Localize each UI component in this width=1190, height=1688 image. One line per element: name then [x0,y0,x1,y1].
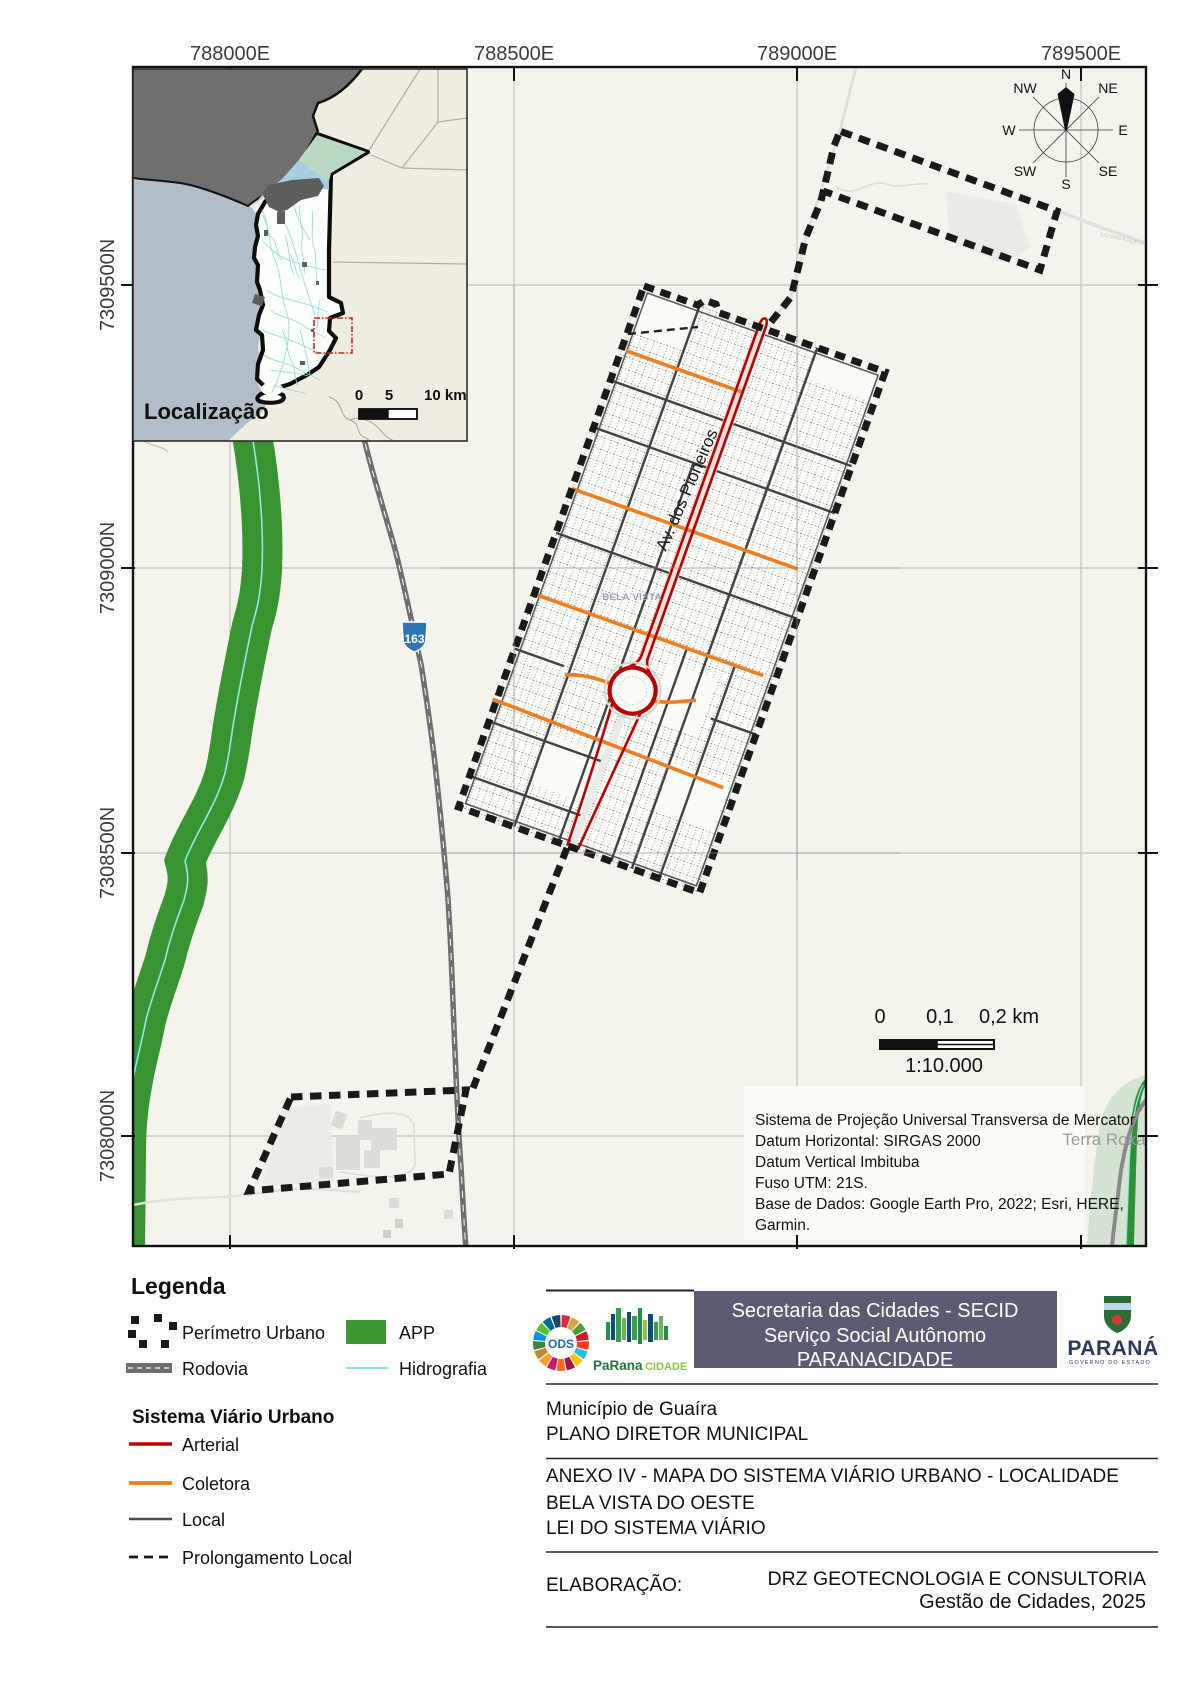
svg-text:PARANACIDADE: PARANACIDADE [797,1349,953,1371]
svg-text:789500E: 789500E [1041,43,1121,65]
svg-text:Base de Dados: Google Earth Pr: Base de Dados: Google Earth Pro, 2022; E… [755,1196,1124,1213]
svg-text:W: W [1002,122,1016,138]
svg-text:Arterial: Arterial [182,1435,239,1455]
svg-text:NW: NW [1013,80,1037,96]
svg-text:1:10.000: 1:10.000 [905,1055,983,1077]
svg-text:ANEXO IV - MAPA DO SISTEMA VIÁ: ANEXO IV - MAPA DO SISTEMA VIÁRIO URBANO… [546,1466,1119,1487]
svg-text:Coletora: Coletora [182,1474,251,1494]
svg-text:Localização: Localização [144,399,269,424]
svg-text:0: 0 [874,1006,885,1028]
svg-text:E: E [1118,122,1127,138]
svg-text:Garmin.: Garmin. [755,1217,810,1234]
svg-text:Município de Guaíra: Município de Guaíra [546,1399,718,1420]
svg-text:Rodovia: Rodovia [182,1359,249,1379]
svg-text:Datum Horizontal: SIRGAS 2000: Datum Horizontal: SIRGAS 2000 [755,1133,981,1150]
svg-text:Datum Vertical Imbituba: Datum Vertical Imbituba [755,1154,920,1171]
svg-text:CIDADE: CIDADE [645,1361,687,1373]
svg-text:Prolongamento Local: Prolongamento Local [182,1548,352,1568]
svg-text:Legenda: Legenda [131,1273,226,1299]
svg-text:N: N [1061,66,1071,82]
svg-text:Sistema de Projeção Universal: Sistema de Projeção Universal Transversa… [755,1112,1135,1129]
svg-text:163: 163 [404,632,424,646]
svg-text:Terra Roxa: Terra Roxa [1062,1130,1146,1149]
svg-text:BELA VISTA DO OESTE: BELA VISTA DO OESTE [546,1493,755,1514]
svg-text:789000E: 789000E [757,43,837,65]
svg-text:Sistema Viário Urbano: Sistema Viário Urbano [132,1407,334,1428]
svg-text:Local: Local [182,1510,225,1530]
svg-text:SE: SE [1099,163,1118,179]
svg-text:ELABORAÇÃO:: ELABORAÇÃO: [546,1574,682,1596]
svg-text:PLANO DIRETOR MUNICIPAL: PLANO DIRETOR MUNICIPAL [546,1424,808,1445]
svg-text:Perímetro Urbano: Perímetro Urbano [182,1323,325,1343]
svg-text:BELA VISTA: BELA VISTA [602,592,661,603]
svg-text:S: S [1061,176,1070,192]
svg-text:7309000N: 7309000N [97,522,119,614]
svg-text:Serviço Social Autônomo: Serviço Social Autônomo [764,1325,986,1347]
svg-text:0,1: 0,1 [926,1006,954,1028]
svg-text:LEI DO SISTEMA VIÁRIO: LEI DO SISTEMA VIÁRIO [546,1518,766,1539]
svg-text:788500E: 788500E [474,43,554,65]
svg-text:PARANÁ: PARANÁ [1067,1337,1158,1360]
svg-text:7308500N: 7308500N [97,807,119,899]
svg-text:PaRana: PaRana [593,1358,643,1373]
svg-text:788000E: 788000E [190,43,270,65]
svg-text:GOVERNO DO ESTADO: GOVERNO DO ESTADO [1069,1360,1151,1366]
svg-text:NE: NE [1098,80,1117,96]
svg-text:7308000N: 7308000N [97,1090,119,1182]
svg-text:7309500N: 7309500N [97,239,119,331]
svg-text:0,2 km: 0,2 km [979,1006,1039,1028]
svg-text:Fuso UTM: 21S.: Fuso UTM: 21S. [755,1175,868,1192]
svg-text:ODS: ODS [548,1337,574,1351]
svg-text:10 km: 10 km [424,387,467,404]
svg-text:0: 0 [355,387,363,404]
svg-text:Hidrografia: Hidrografia [399,1359,488,1379]
svg-text:Secretaria das Cidades - SECID: Secretaria das Cidades - SECID [732,1300,1019,1322]
svg-text:Gestão de Cidades, 2025: Gestão de Cidades, 2025 [919,1591,1146,1613]
svg-text:APP: APP [399,1323,435,1343]
svg-text:DRZ GEOTECNOLOGIA E CONSULTORI: DRZ GEOTECNOLOGIA E CONSULTORIA [767,1568,1146,1590]
svg-text:SW: SW [1014,163,1037,179]
svg-text:5: 5 [385,387,393,404]
